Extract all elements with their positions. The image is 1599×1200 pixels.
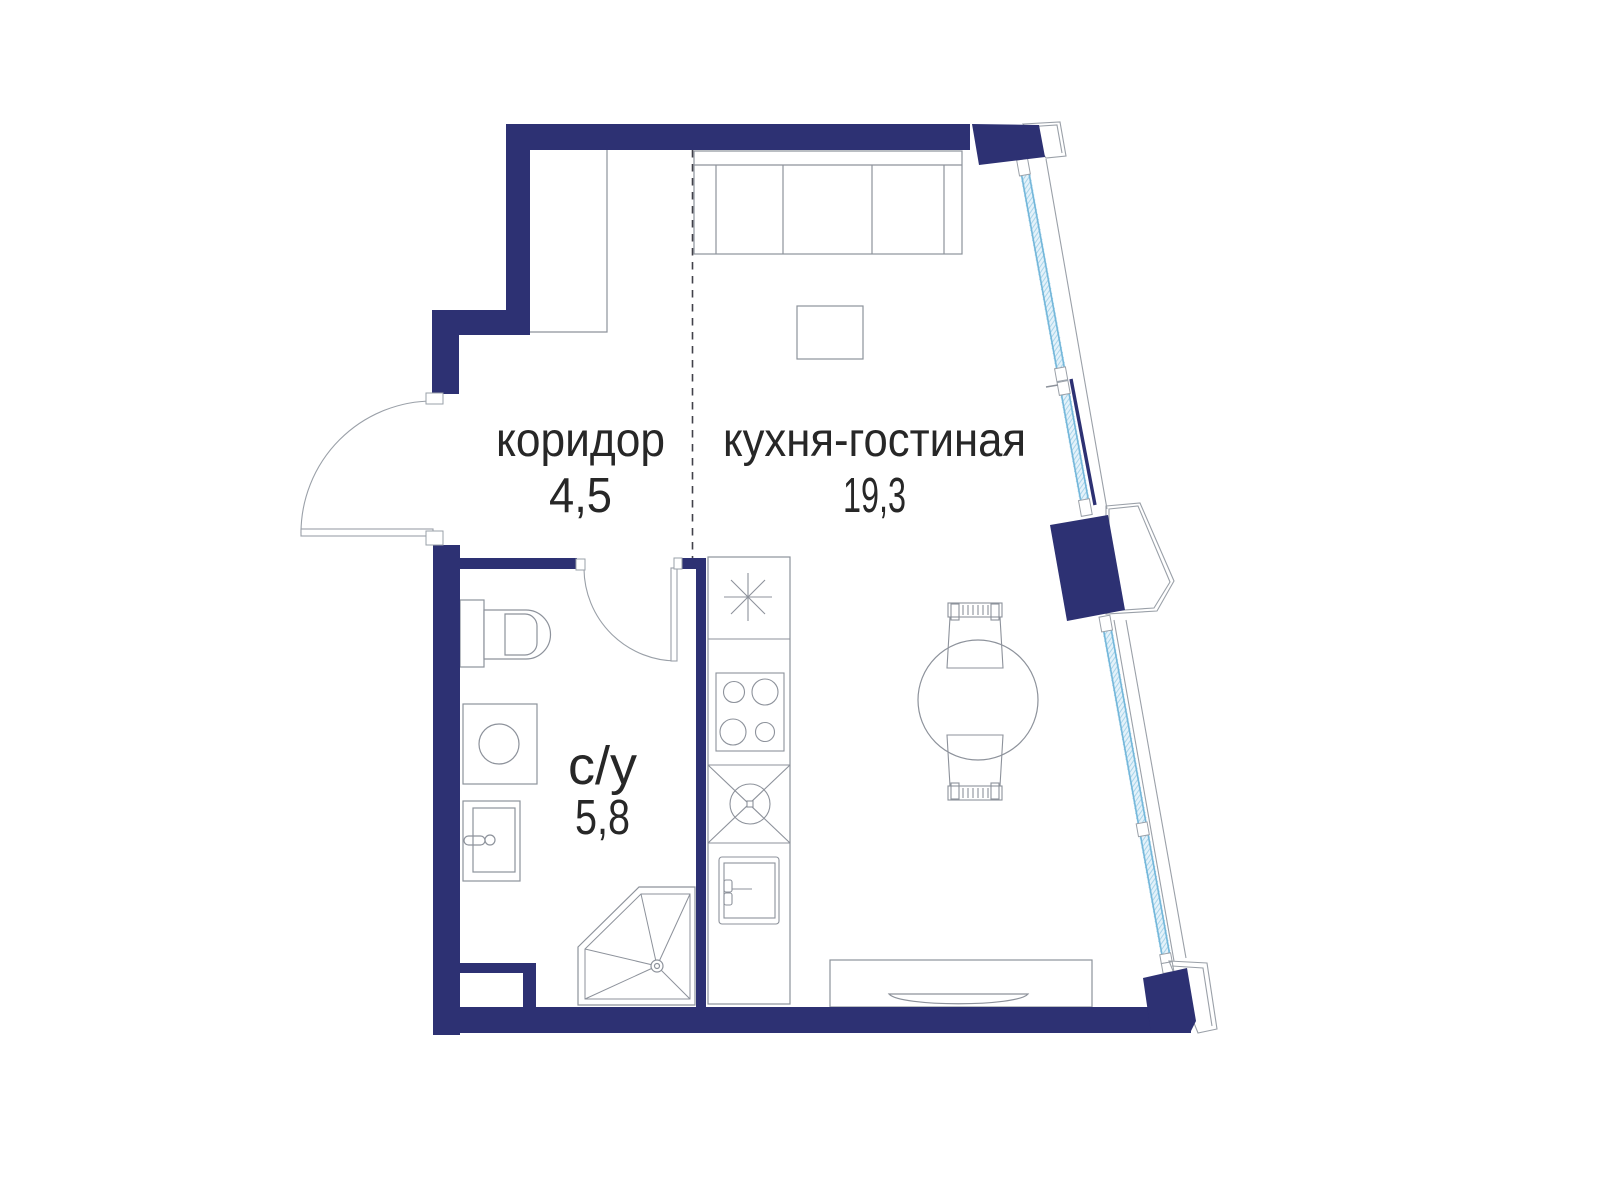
svg-text:с/у: с/у (568, 736, 637, 796)
svg-text:коридор: коридор (496, 414, 665, 467)
svg-text:кухня-гостиная: кухня-гостиная (723, 414, 1026, 467)
svg-text:5,8: 5,8 (575, 791, 630, 845)
svg-text:4,5: 4,5 (549, 469, 612, 523)
svg-text:19,3: 19,3 (843, 469, 906, 523)
